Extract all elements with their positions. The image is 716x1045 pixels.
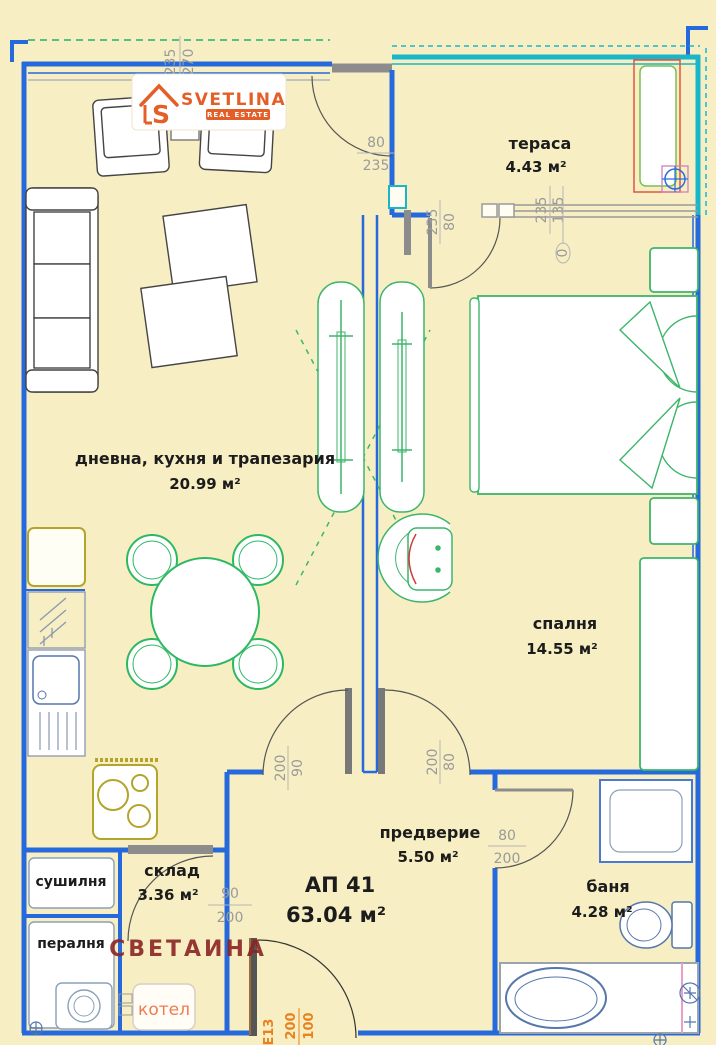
bathtub bbox=[500, 963, 700, 1033]
watermark-text: СВЕТАИНА bbox=[109, 937, 267, 962]
bedroom-area: 14.55 м² bbox=[526, 640, 598, 658]
dim-bedroom-door: 80 200 bbox=[425, 740, 458, 784]
apartment-label: АП 41 bbox=[305, 873, 375, 897]
hallway-label: предверие bbox=[380, 823, 481, 842]
dim-entrance-door: 100 200 Е13 bbox=[262, 1008, 317, 1045]
kitchen-sink bbox=[28, 650, 85, 756]
balcony-door-frame bbox=[389, 186, 406, 208]
kitchen-shelves bbox=[28, 592, 85, 648]
dim-value: 270 bbox=[181, 49, 197, 76]
bedroom-dresser bbox=[640, 558, 698, 770]
dim-bath-door: 80 200 bbox=[488, 828, 526, 867]
dim-value: 235 bbox=[534, 197, 550, 224]
dim-living-door: 90 200 bbox=[273, 746, 306, 790]
dim-value: 235 bbox=[163, 49, 179, 76]
terrace-equipment bbox=[634, 60, 688, 192]
dim-value: 0 bbox=[555, 249, 571, 258]
wardrobe-bedroom bbox=[380, 282, 424, 512]
dim-value: 200 bbox=[494, 851, 521, 867]
dim-value: 235 bbox=[363, 158, 390, 174]
corner-mark-top-left bbox=[12, 42, 28, 62]
sofa bbox=[26, 188, 98, 392]
bathroom-area: 4.28 м² bbox=[571, 903, 632, 921]
living-area: 20.99 м² bbox=[169, 475, 241, 493]
dim-value: 200 bbox=[425, 749, 441, 776]
logo: S SVETLINA REAL ESTATE bbox=[132, 74, 286, 130]
dim-value: 80 bbox=[442, 753, 458, 771]
balcony-door-jamb bbox=[404, 210, 411, 255]
logo-sub-text: REAL ESTATE bbox=[207, 111, 269, 119]
dim-value: 80 bbox=[442, 213, 458, 231]
living-label: дневна, кухня и трапезария bbox=[75, 449, 335, 468]
dim-value: 100 bbox=[302, 1012, 317, 1039]
floor-plan: 270 235 80 235 80 235 135 235 0 90 bbox=[0, 0, 716, 1045]
dim-value: 80 bbox=[367, 135, 385, 151]
dim-value: 90 bbox=[221, 886, 239, 902]
dim-value: 200 bbox=[217, 910, 244, 926]
coffee-table-2 bbox=[141, 276, 237, 367]
dim-bedroom-window: 135 235 0 bbox=[534, 186, 571, 263]
logo-text: SVETLINA bbox=[181, 90, 286, 110]
logo-s-letter: S bbox=[152, 100, 170, 129]
nightstand-bottom bbox=[650, 498, 698, 544]
dining-table bbox=[151, 558, 259, 666]
floor-plan-drawing: 270 235 80 235 80 235 135 235 0 90 bbox=[0, 0, 716, 1045]
dim-value: 135 bbox=[551, 197, 567, 224]
bedroom-furniture bbox=[470, 248, 698, 770]
dim-value: 235 bbox=[425, 209, 441, 236]
dim-value: 90 bbox=[290, 759, 306, 777]
bedroom-door-leaf bbox=[378, 688, 385, 774]
drying-label: сушилня bbox=[35, 874, 106, 890]
wardrobe-living bbox=[318, 282, 364, 512]
storage-area: 3.36 м² bbox=[137, 886, 198, 904]
terrace-area: 4.43 м² bbox=[505, 158, 566, 176]
boiler-label: котел bbox=[138, 1000, 190, 1020]
dim-storage-door: 90 200 bbox=[208, 886, 252, 926]
dim-value: 200 bbox=[273, 755, 289, 782]
nightstand-top bbox=[650, 248, 698, 292]
bed bbox=[470, 296, 697, 494]
dining-set bbox=[127, 535, 283, 689]
washing-machine bbox=[56, 983, 112, 1029]
fridge bbox=[28, 528, 85, 586]
bedroom-label: спалня bbox=[533, 614, 597, 633]
living-furniture bbox=[26, 95, 275, 392]
living-door-leaf bbox=[345, 688, 352, 774]
storage-label: склад bbox=[144, 861, 200, 880]
terrace-radiator bbox=[640, 66, 676, 186]
bedroom-chair bbox=[378, 514, 452, 602]
entrance-code: Е13 bbox=[262, 1019, 277, 1045]
shower-unit bbox=[600, 780, 692, 862]
room-labels: тераса 4.43 м² дневна, кухня и трапезари… bbox=[35, 134, 632, 1020]
apartment-area: 63.04 м² bbox=[286, 903, 386, 927]
laundry-label: пералня bbox=[37, 936, 105, 952]
bedroom-window bbox=[482, 204, 698, 217]
dim-value: 200 bbox=[284, 1012, 299, 1039]
bathroom-label: баня bbox=[586, 877, 629, 896]
dim-value: 80 bbox=[498, 828, 516, 844]
cooktop bbox=[93, 765, 157, 839]
hallway-area: 5.50 м² bbox=[397, 848, 458, 866]
terrace-label: тераса bbox=[509, 134, 572, 153]
corner-mark-top-right bbox=[688, 28, 708, 58]
storage-door-leaf bbox=[128, 845, 213, 854]
